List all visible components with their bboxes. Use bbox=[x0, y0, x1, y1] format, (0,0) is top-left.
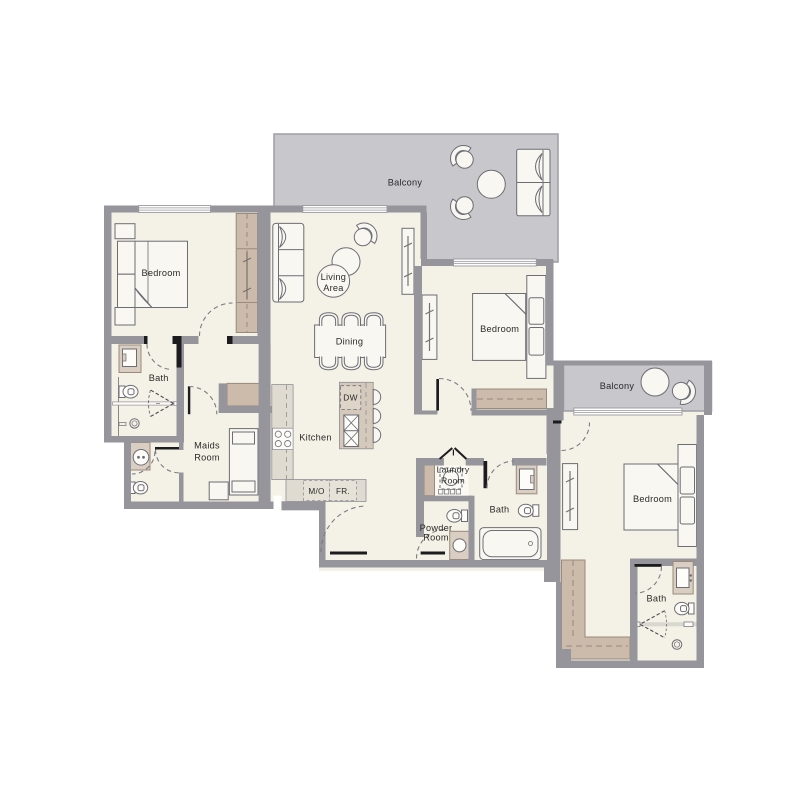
svg-text:Balcony: Balcony bbox=[600, 381, 635, 391]
svg-text:DW: DW bbox=[343, 393, 357, 403]
svg-text:Living: Living bbox=[321, 272, 347, 282]
svg-text:Laundry: Laundry bbox=[437, 465, 470, 475]
svg-text:Balcony: Balcony bbox=[388, 178, 423, 188]
svg-text:Bath: Bath bbox=[647, 594, 667, 604]
svg-text:Area: Area bbox=[323, 283, 344, 293]
svg-text:Maids: Maids bbox=[194, 441, 220, 451]
svg-text:Bedroom: Bedroom bbox=[141, 268, 180, 278]
svg-text:FR.: FR. bbox=[336, 487, 350, 496]
svg-text:Bath: Bath bbox=[149, 373, 169, 383]
svg-text:Kitchen: Kitchen bbox=[299, 433, 331, 443]
svg-text:Bedroom: Bedroom bbox=[480, 324, 519, 334]
svg-text:Room: Room bbox=[194, 453, 220, 463]
svg-text:Bath: Bath bbox=[489, 504, 509, 514]
svg-text:Bedroom: Bedroom bbox=[633, 494, 672, 504]
svg-text:Dining: Dining bbox=[336, 337, 364, 347]
svg-text:Room: Room bbox=[423, 533, 449, 543]
svg-text:Room: Room bbox=[441, 476, 465, 486]
svg-text:M/O: M/O bbox=[308, 487, 324, 496]
svg-text:Powder: Powder bbox=[420, 523, 453, 533]
